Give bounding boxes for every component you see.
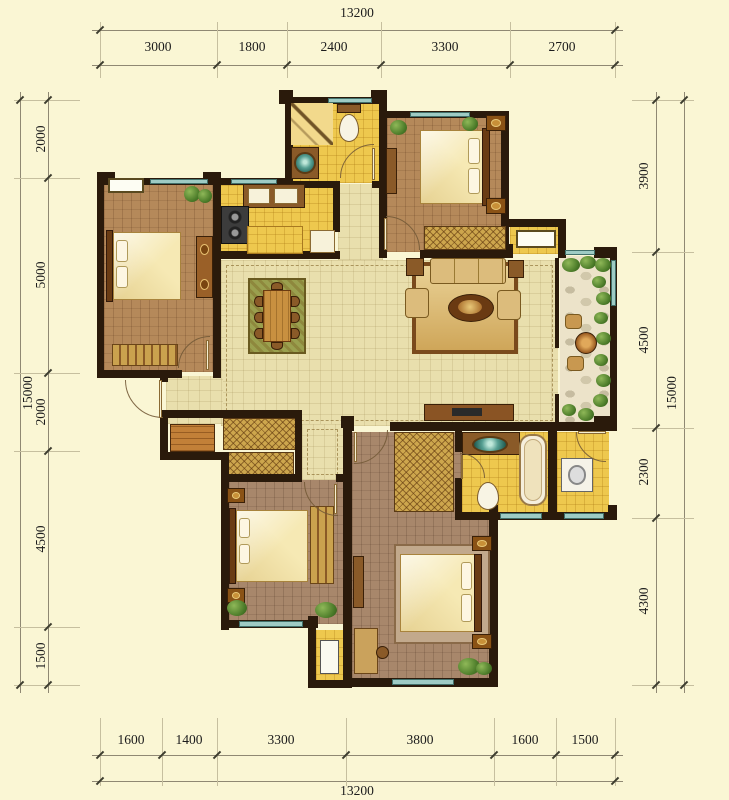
floor-plan-canvas: 13200 3000 1800 2400 3300 2700 1600 1400… bbox=[0, 0, 729, 800]
entry-door bbox=[516, 230, 556, 248]
wall bbox=[501, 219, 565, 227]
dim-right-seg-1: 4500 bbox=[636, 327, 652, 354]
wall bbox=[97, 370, 182, 378]
armchair bbox=[405, 288, 429, 318]
dining-chair bbox=[271, 342, 283, 350]
door-leaf bbox=[206, 340, 209, 370]
plant bbox=[593, 394, 608, 407]
plant bbox=[594, 354, 608, 366]
pillow bbox=[239, 544, 250, 564]
wall bbox=[295, 410, 302, 482]
rug bbox=[112, 344, 178, 366]
plant bbox=[595, 258, 611, 272]
bath-vestibule-floor bbox=[338, 184, 383, 260]
wall bbox=[343, 424, 352, 680]
dim-bottom-seg-5: 1500 bbox=[572, 732, 599, 748]
door-leaf bbox=[159, 380, 162, 418]
wall bbox=[336, 474, 345, 482]
dim-bottom-seg-1: 1400 bbox=[176, 732, 203, 748]
bed-headboard bbox=[106, 230, 113, 302]
dim-top-seg-2: 2400 bbox=[321, 39, 348, 55]
dining-chair bbox=[271, 282, 283, 290]
dim-segment-line bbox=[48, 92, 49, 693]
dim-top-seg-4: 2700 bbox=[549, 39, 576, 55]
rug bbox=[310, 506, 334, 584]
wall bbox=[455, 478, 462, 516]
dim-top-seg-0: 3000 bbox=[145, 39, 172, 55]
dim-left-seg-3: 4500 bbox=[33, 526, 49, 553]
dim-guide bbox=[510, 22, 511, 78]
dim-bottom-seg-0: 1600 bbox=[118, 732, 145, 748]
nightstand bbox=[486, 198, 506, 214]
dining-chair bbox=[254, 328, 263, 339]
plant bbox=[594, 312, 608, 324]
dresser bbox=[386, 148, 397, 194]
bathtub bbox=[519, 434, 547, 506]
dim-guide bbox=[287, 22, 288, 78]
dim-bottom-seg-4: 1600 bbox=[512, 732, 539, 748]
wall-pillar bbox=[371, 90, 387, 104]
kitchen-sink bbox=[248, 188, 270, 204]
wall bbox=[160, 452, 223, 460]
dim-segment-line bbox=[656, 92, 657, 693]
dim-guide bbox=[632, 428, 694, 429]
kitchen-sink bbox=[274, 188, 298, 204]
plant bbox=[592, 276, 606, 288]
door-leaf bbox=[334, 484, 337, 514]
door-leaf bbox=[372, 148, 375, 180]
wardrobe-strip-1 bbox=[223, 418, 300, 450]
dim-guide bbox=[217, 22, 218, 78]
walk-in-closet bbox=[394, 432, 454, 512]
coffee-table-top bbox=[458, 300, 482, 314]
pillow bbox=[116, 266, 128, 288]
wall-pillar bbox=[341, 416, 354, 428]
window bbox=[392, 679, 454, 685]
side-table bbox=[508, 260, 524, 278]
dim-total-line bbox=[684, 92, 685, 693]
wall bbox=[160, 410, 302, 418]
dim-left-seg-4: 1500 bbox=[33, 643, 49, 670]
dim-total-line bbox=[20, 92, 21, 693]
dining-chair bbox=[291, 328, 300, 339]
door-leaf bbox=[354, 432, 357, 462]
plant bbox=[315, 602, 337, 618]
window bbox=[239, 621, 303, 627]
pillow bbox=[116, 240, 128, 262]
desk bbox=[354, 628, 378, 674]
bed-headboard bbox=[474, 554, 482, 632]
wardrobe bbox=[424, 226, 506, 250]
armchair bbox=[497, 290, 521, 320]
window bbox=[328, 98, 372, 103]
dim-left-seg-2: 2000 bbox=[33, 399, 49, 426]
nightstand bbox=[486, 115, 506, 131]
dining-chair bbox=[291, 312, 300, 323]
wall bbox=[221, 474, 302, 482]
dim-guide bbox=[632, 518, 694, 519]
balcony-door-frame bbox=[555, 258, 559, 348]
dim-left-seg-0: 2000 bbox=[33, 126, 49, 153]
floor-border-motif bbox=[307, 429, 338, 475]
dim-top-total: 13200 bbox=[340, 5, 374, 21]
pillow bbox=[461, 594, 472, 622]
ac-unit bbox=[320, 640, 339, 674]
sink-basin bbox=[472, 436, 508, 453]
dining-chair bbox=[291, 296, 300, 307]
corridor-floor bbox=[302, 424, 343, 480]
dim-segment-line bbox=[92, 755, 623, 756]
pillow bbox=[468, 138, 480, 164]
dim-total-line bbox=[92, 30, 623, 31]
door-leaf bbox=[384, 218, 387, 250]
wall-pillar bbox=[279, 90, 293, 104]
toilet bbox=[477, 482, 499, 510]
plant bbox=[227, 600, 247, 616]
plant bbox=[578, 408, 594, 421]
wall bbox=[390, 422, 617, 431]
plant bbox=[462, 117, 478, 131]
plant bbox=[596, 292, 611, 305]
wall bbox=[213, 178, 221, 378]
wall-pillar bbox=[608, 505, 617, 520]
plant bbox=[562, 404, 576, 416]
door-leaf bbox=[578, 431, 606, 434]
window bbox=[500, 513, 542, 519]
bay-window bbox=[108, 178, 144, 193]
wall bbox=[333, 184, 340, 232]
dim-total-line bbox=[92, 781, 623, 782]
wardrobe bbox=[196, 236, 213, 298]
wall-pillar bbox=[594, 416, 617, 428]
kitchen-island bbox=[247, 226, 303, 254]
pillow bbox=[468, 168, 480, 194]
plant bbox=[198, 189, 212, 203]
wall bbox=[381, 250, 387, 258]
washing-machine bbox=[561, 458, 593, 492]
dim-top-seg-3: 3300 bbox=[432, 39, 459, 55]
window bbox=[565, 250, 595, 255]
pillow bbox=[239, 518, 250, 538]
dim-guide bbox=[632, 252, 694, 253]
balcony-chair bbox=[567, 356, 584, 371]
wall bbox=[548, 426, 557, 516]
wall-pillar bbox=[308, 616, 318, 628]
dim-right-total: 15000 bbox=[664, 376, 680, 410]
dining-chair bbox=[254, 312, 263, 323]
plant bbox=[596, 374, 611, 387]
dining-chair bbox=[254, 296, 263, 307]
toilet-tank bbox=[337, 104, 361, 113]
window bbox=[564, 513, 604, 519]
tv bbox=[452, 408, 482, 416]
plant bbox=[596, 332, 611, 345]
dim-top-seg-1: 1800 bbox=[239, 39, 266, 55]
desk-chair bbox=[376, 646, 389, 659]
dim-guide bbox=[381, 22, 382, 78]
sofa bbox=[430, 258, 506, 284]
pillow bbox=[461, 562, 472, 590]
dim-right-seg-0: 3900 bbox=[636, 163, 652, 190]
wall bbox=[489, 505, 498, 687]
kitchen-cabinet bbox=[310, 230, 335, 253]
balcony-door-frame bbox=[555, 394, 559, 424]
closet-nook-floor bbox=[170, 424, 215, 452]
sink-basin bbox=[294, 152, 316, 174]
nightstand bbox=[472, 536, 492, 551]
bed-headboard bbox=[229, 508, 236, 584]
dresser bbox=[353, 556, 364, 608]
nightstand bbox=[227, 488, 245, 503]
dim-left-seg-1: 5000 bbox=[33, 262, 49, 289]
wall bbox=[308, 624, 316, 688]
window bbox=[150, 179, 208, 184]
plant bbox=[476, 662, 492, 675]
dim-segment-line bbox=[92, 65, 623, 66]
dining-table bbox=[263, 290, 291, 342]
plant bbox=[390, 120, 407, 135]
toilet bbox=[339, 114, 359, 142]
balcony-chair bbox=[565, 314, 582, 329]
dim-right-seg-2: 2300 bbox=[636, 459, 652, 486]
dim-right-seg-3: 4300 bbox=[636, 588, 652, 615]
dim-bottom-seg-2: 3300 bbox=[268, 732, 295, 748]
dim-bottom-seg-3: 3800 bbox=[407, 732, 434, 748]
window bbox=[410, 112, 470, 117]
balcony-table bbox=[575, 332, 597, 354]
side-table bbox=[406, 258, 424, 276]
wall bbox=[97, 178, 104, 378]
door-leaf bbox=[461, 455, 463, 479]
plant bbox=[580, 256, 596, 269]
plant bbox=[562, 258, 580, 272]
stove bbox=[221, 206, 249, 244]
nightstand bbox=[472, 634, 492, 649]
wall bbox=[455, 428, 462, 452]
shower-corner bbox=[291, 103, 333, 145]
bed-headboard bbox=[482, 128, 490, 206]
window bbox=[611, 260, 616, 306]
